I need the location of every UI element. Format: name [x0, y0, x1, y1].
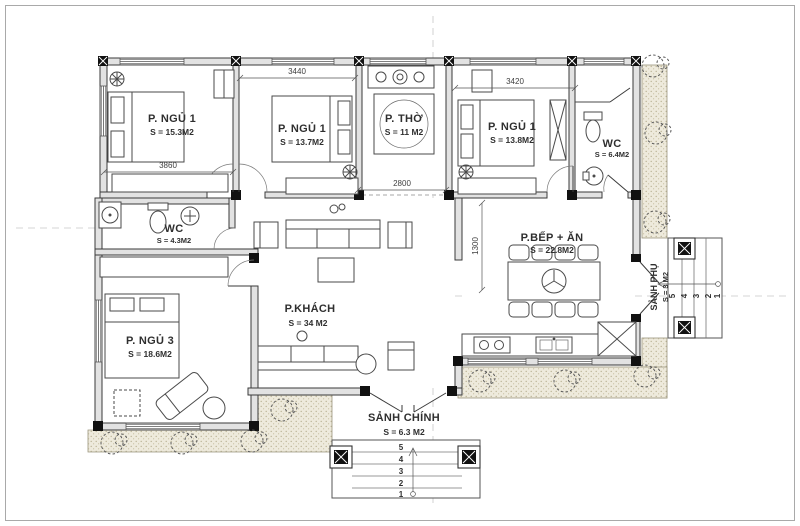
room-area: S = 6.3 M2: [383, 427, 425, 437]
room-label: P. NGỦ 3: [126, 334, 174, 347]
room-area: S = 4.3M2: [157, 236, 191, 245]
room-area: S = 34 M2: [289, 318, 328, 328]
dim-label: 1300: [471, 237, 480, 255]
window: [126, 423, 200, 430]
step-number: 1: [713, 293, 722, 298]
column: [231, 56, 241, 66]
step-number: 4: [680, 293, 689, 298]
room-label: P. THỜ: [385, 112, 423, 125]
room-area: S = 11 M2: [385, 127, 424, 137]
window: [100, 86, 107, 136]
room-area: S = 22.8M2: [530, 245, 574, 255]
window: [370, 58, 426, 65]
column: [98, 56, 108, 66]
dim-label: 2800: [393, 179, 411, 188]
step-number: 1: [399, 490, 404, 499]
step-number: 2: [399, 479, 404, 488]
ceiling-fan-icon: [110, 72, 124, 86]
window: [95, 300, 102, 362]
main-entry-steps: [330, 440, 480, 498]
step-number: 5: [399, 443, 404, 452]
room-area: S = 6.4M2: [595, 150, 629, 159]
room-area: S = 15.3M2: [150, 127, 194, 137]
room-area: S = 18.6M2: [128, 349, 172, 359]
ceiling-fan-icon: [343, 165, 357, 179]
room-area: S = 13.7M2: [280, 137, 324, 147]
room-label: P. NGỦ 1: [278, 122, 326, 135]
window: [470, 58, 536, 65]
step-number: 4: [399, 455, 404, 464]
step-number: 3: [692, 293, 701, 298]
ceiling-fan-icon: [459, 165, 473, 179]
column: [444, 56, 454, 66]
column: [631, 56, 641, 66]
dim-label: 3440: [288, 67, 306, 76]
step-number: 5: [668, 293, 677, 298]
step-number: 3: [399, 467, 404, 476]
fridge-icon: [598, 322, 636, 356]
room-area: S = 13.8M2: [490, 135, 534, 145]
room-label: P.BẾP + ĂN: [521, 231, 584, 244]
window: [538, 358, 592, 365]
room-label: SẢNH PHỤ: [648, 263, 659, 310]
column: [354, 56, 364, 66]
room-label: P.KHÁCH: [285, 302, 336, 315]
floor-plan-drawing: 3440 3420 3860 2800 1300 P. NGỦ 1 S = 15…: [0, 0, 800, 526]
room-label: WC: [165, 223, 184, 235]
sink-icon: [181, 207, 199, 225]
room-label: P. NGỦ 1: [488, 120, 536, 133]
column: [567, 56, 577, 66]
window: [584, 58, 624, 65]
floor-plan-page: 3440 3420 3860 2800 1300 P. NGỦ 1 S = 15…: [0, 0, 800, 526]
room-label: P. NGỦ 1: [148, 112, 196, 125]
window: [120, 58, 184, 65]
dim-label: 3420: [506, 77, 524, 86]
stove-icon: [474, 337, 510, 353]
dim-label: 3860: [159, 161, 177, 170]
worship-room-furniture: [368, 66, 434, 154]
window: [272, 58, 334, 65]
room-label: SẢNH CHÍNH: [368, 411, 440, 424]
sink-icon: [536, 337, 572, 353]
window: [468, 358, 526, 365]
room-label: WC: [603, 138, 622, 150]
step-number: 2: [704, 293, 713, 298]
